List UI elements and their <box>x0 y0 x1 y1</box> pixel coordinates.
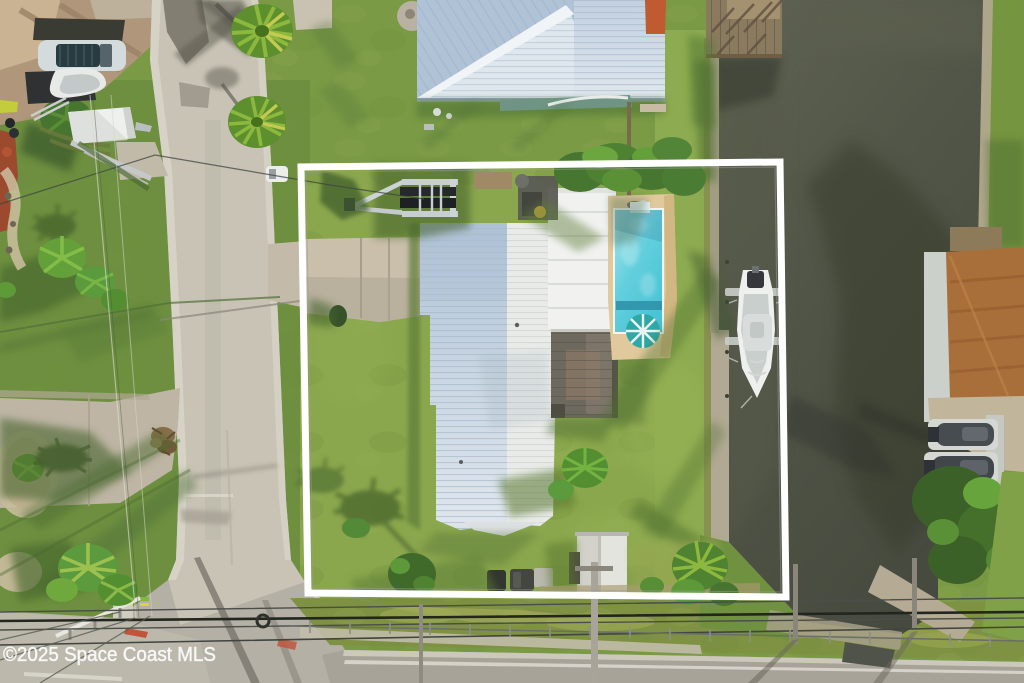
svg-text:©2025 Space Coast MLS: ©2025 Space Coast MLS <box>3 644 216 666</box>
